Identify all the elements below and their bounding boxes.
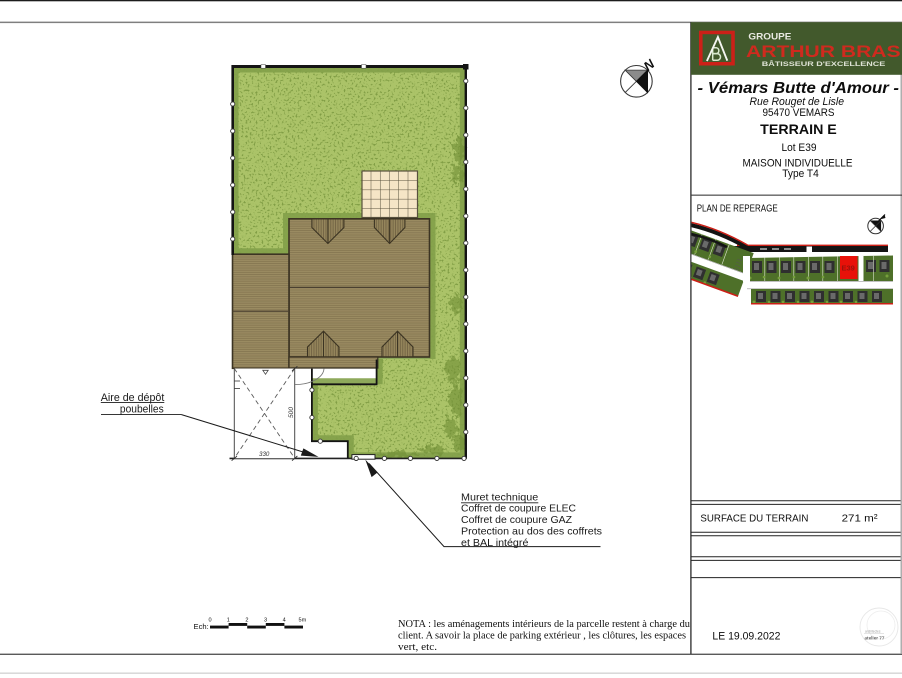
svg-text:Type T4: Type T4 [782,168,819,180]
svg-text:PLAN DE REPERAGE: PLAN DE REPERAGE [697,204,778,215]
svg-text:Muret technique: Muret technique [461,492,539,503]
svg-text:1: 1 [227,618,230,624]
svg-text:2: 2 [245,618,248,624]
svg-text:5m: 5m [299,618,307,624]
svg-text:atelier 77: atelier 77 [865,636,885,641]
svg-text:GROUPE: GROUPE [748,32,791,42]
svg-text:330: 330 [259,451,270,458]
svg-text:500: 500 [288,407,295,418]
svg-text:BÂTISSEUR D'EXCELLENCE: BÂTISSEUR D'EXCELLENCE [762,59,887,68]
svg-text:Coffret de coupure ELEC: Coffret de coupure ELEC [461,504,576,515]
svg-text:271 m²: 271 m² [842,512,879,524]
svg-text:NOTA : les aménagements intéri: NOTA : les aménagements intérieurs de la… [398,619,690,630]
svg-text:ARTHUR BRAS: ARTHUR BRAS [746,42,901,61]
svg-text:3: 3 [264,618,267,624]
svg-text:0: 0 [209,618,212,624]
svg-text:architectes: architectes [865,630,881,634]
svg-text:95470 VEMARS: 95470 VEMARS [763,107,835,119]
svg-text:client. A savoir la place de p: client. A savoir la place de parking ext… [398,631,686,642]
svg-text:4: 4 [283,618,286,624]
svg-text:Coffret de coupure GAZ: Coffret de coupure GAZ [461,515,572,526]
svg-text:Aire de dépôt: Aire de dépôt [101,392,165,404]
svg-text:Ech:: Ech: [194,622,209,631]
svg-text:vert, etc.: vert, etc. [398,642,437,653]
svg-text:et BAL intégré: et BAL intégré [461,538,529,549]
svg-text:E39: E39 [842,264,855,273]
svg-text:Lot E39: Lot E39 [782,142,817,154]
svg-text:LE 19.09.2022: LE 19.09.2022 [712,631,780,643]
svg-text:Protection au dos des coffrets: Protection au dos des coffrets [461,526,602,537]
svg-text:TERRAIN E: TERRAIN E [760,122,837,137]
svg-text:- Vémars Butte d'Amour -: - Vémars Butte d'Amour - [698,80,900,97]
svg-text:poubelles: poubelles [120,403,164,415]
svg-text:SURFACE DU TERRAIN: SURFACE DU TERRAIN [700,512,808,524]
